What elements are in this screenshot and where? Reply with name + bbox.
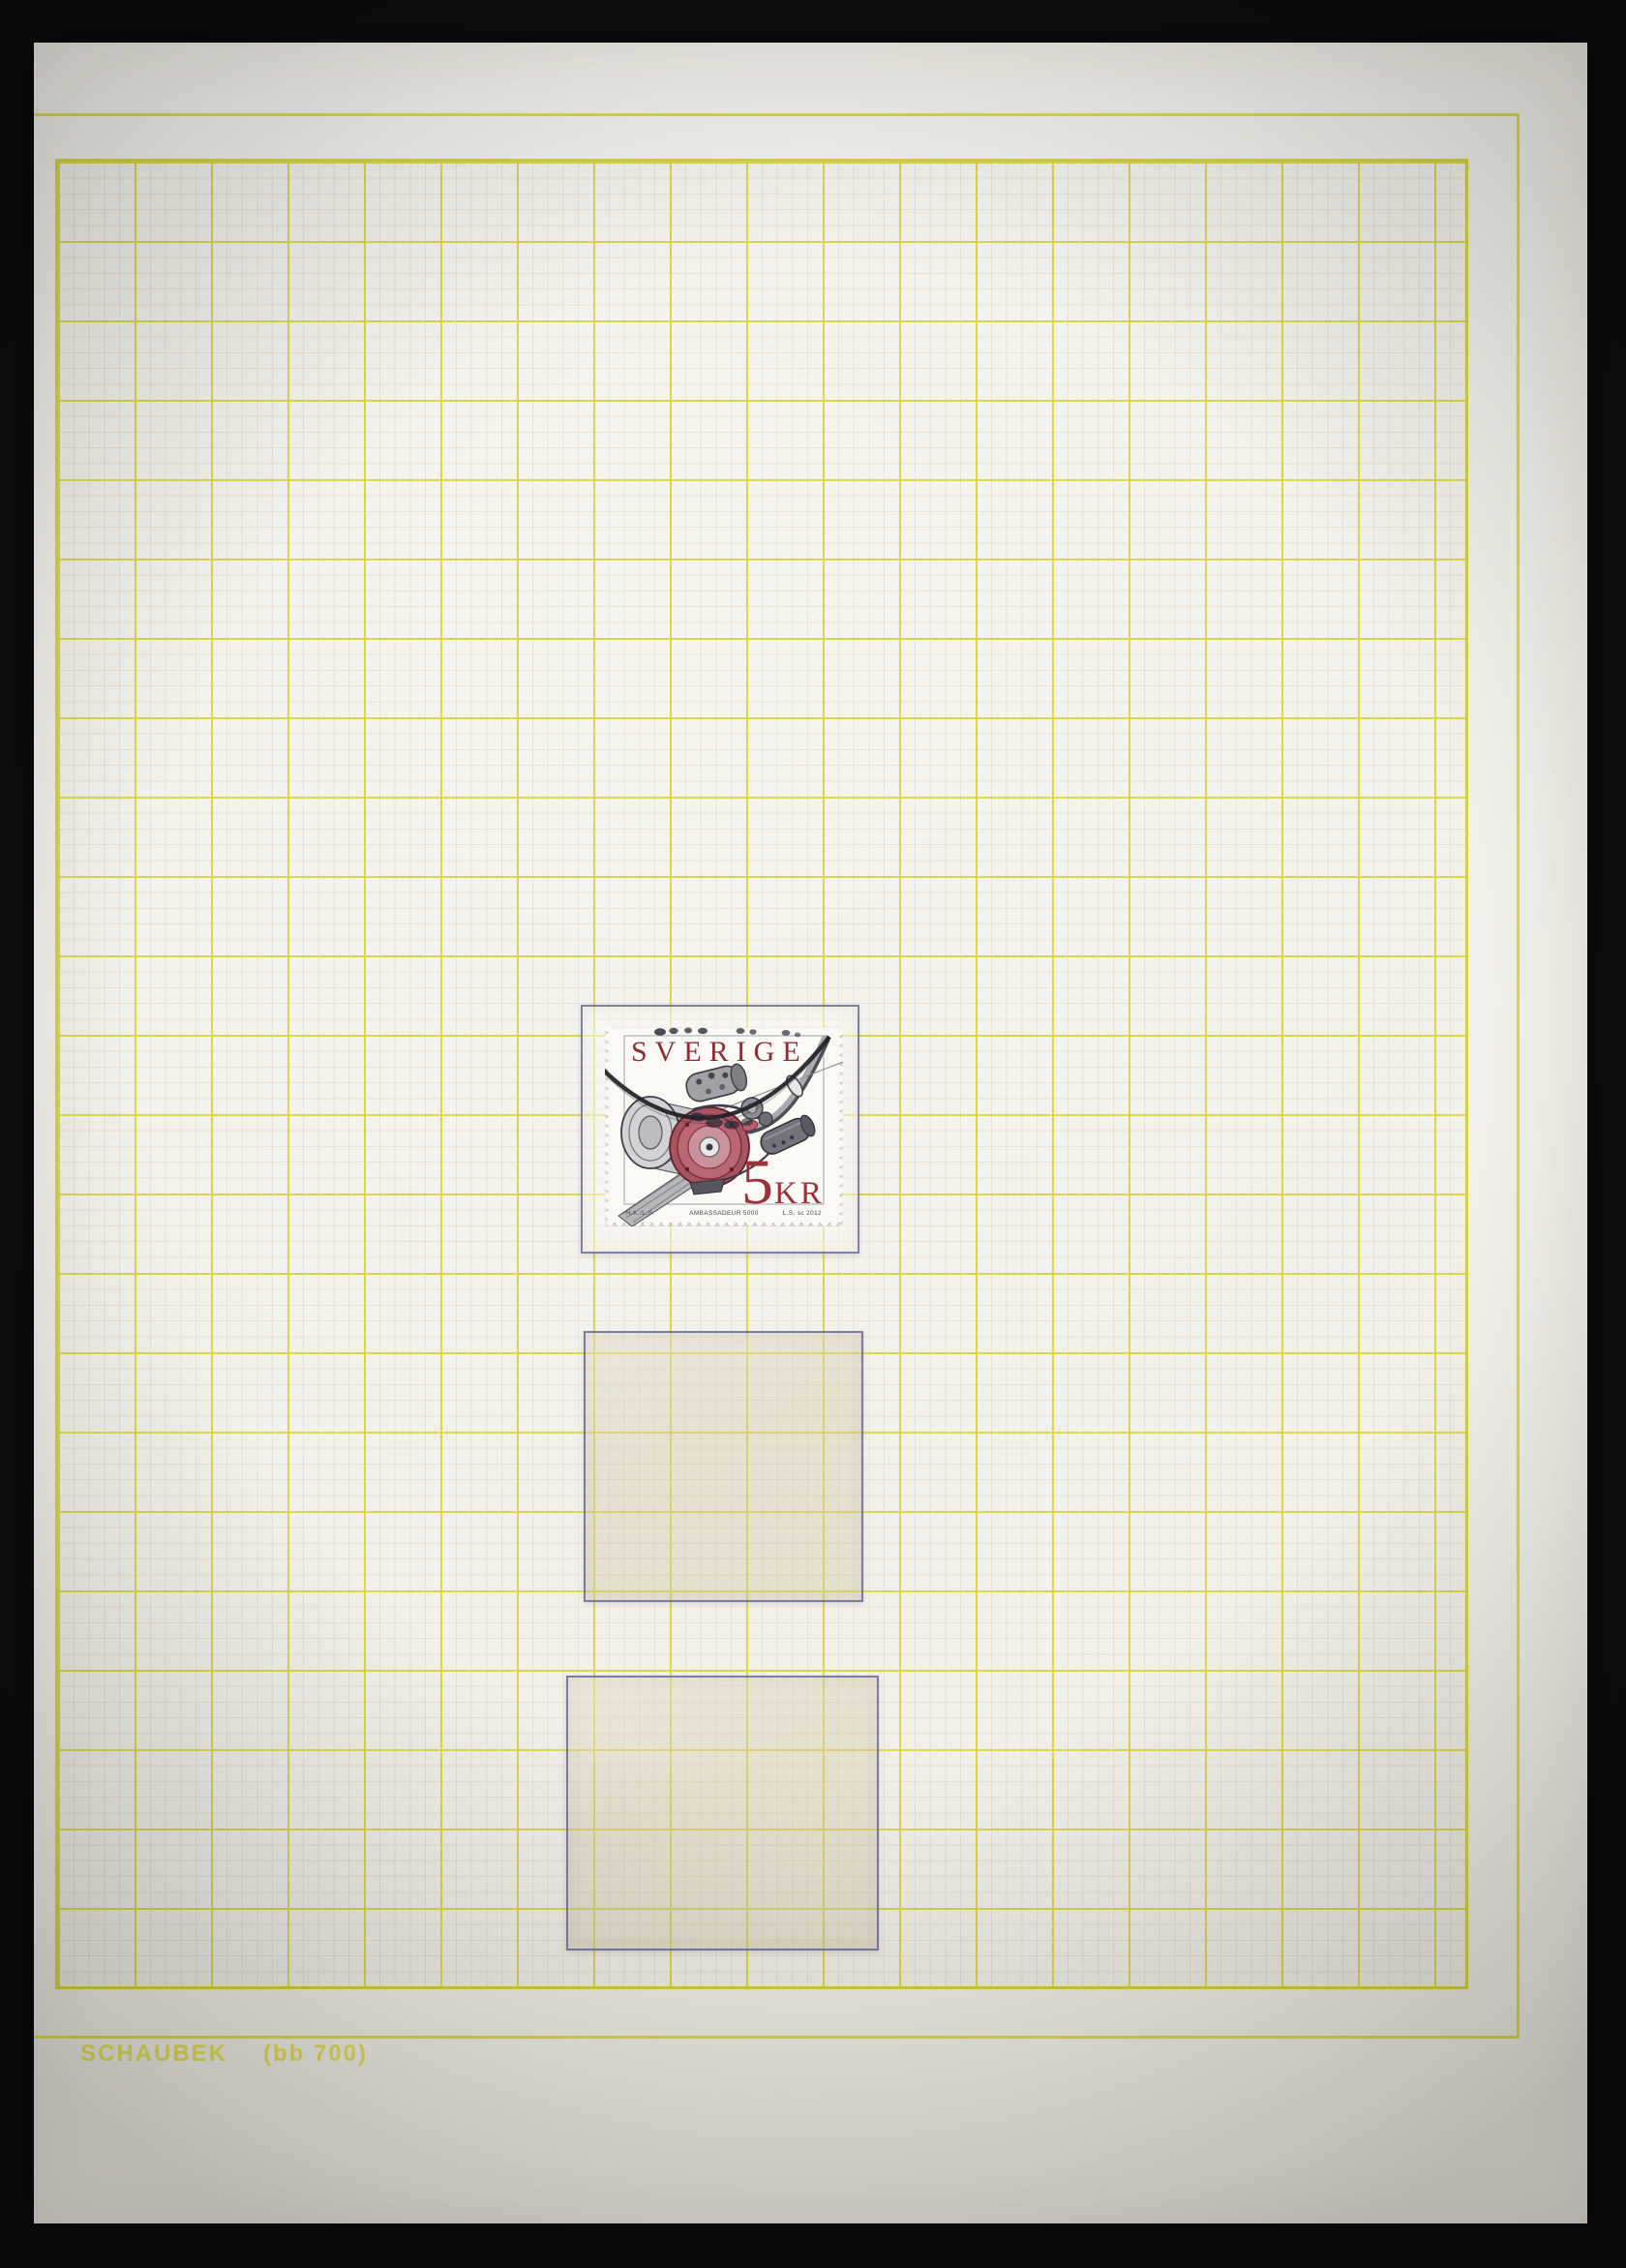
publisher-imprint: SCHAUBEK [80,2041,227,2068]
stamp-country-text: SVERIGE [631,1036,808,1068]
mount-film-sheen [586,1333,861,1600]
stamp-currency-text: KR [774,1176,825,1211]
sweden-5kr-stamp: SVERIGE [605,1025,843,1226]
stamp-subject-text: AMBASSADEUR 5000 [689,1210,758,1217]
empty-mount-bottom [566,1676,879,1950]
stamp-engraver-left: H.K./L.S. [626,1210,654,1217]
empty-mount-middle [584,1331,863,1602]
stamp-value-text: 5 [741,1147,773,1218]
stamp-credit-right: L.S. sc 2012 [783,1210,822,1217]
mount-film-sheen [568,1678,877,1949]
stamp-mount-occupied: SVERIGE [581,1005,859,1254]
album-page: SVERIGE [34,43,1587,2223]
page-code-imprint: (bb 700) [263,2041,368,2068]
photo-backdrop: { "photo": { "description": "Photograph … [0,0,1626,2268]
